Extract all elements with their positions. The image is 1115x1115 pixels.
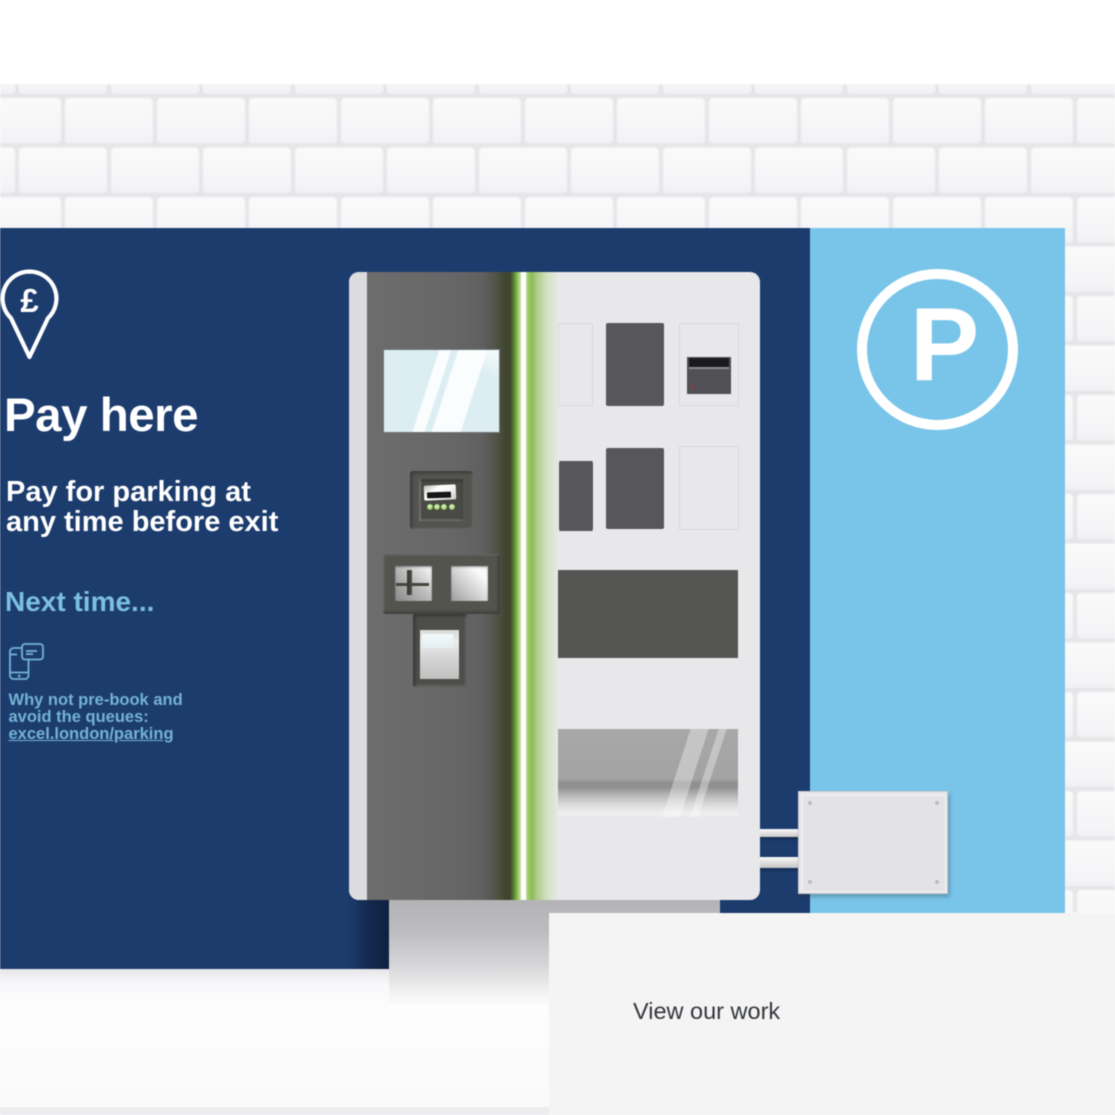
svg-text:£: £ bbox=[20, 282, 39, 319]
